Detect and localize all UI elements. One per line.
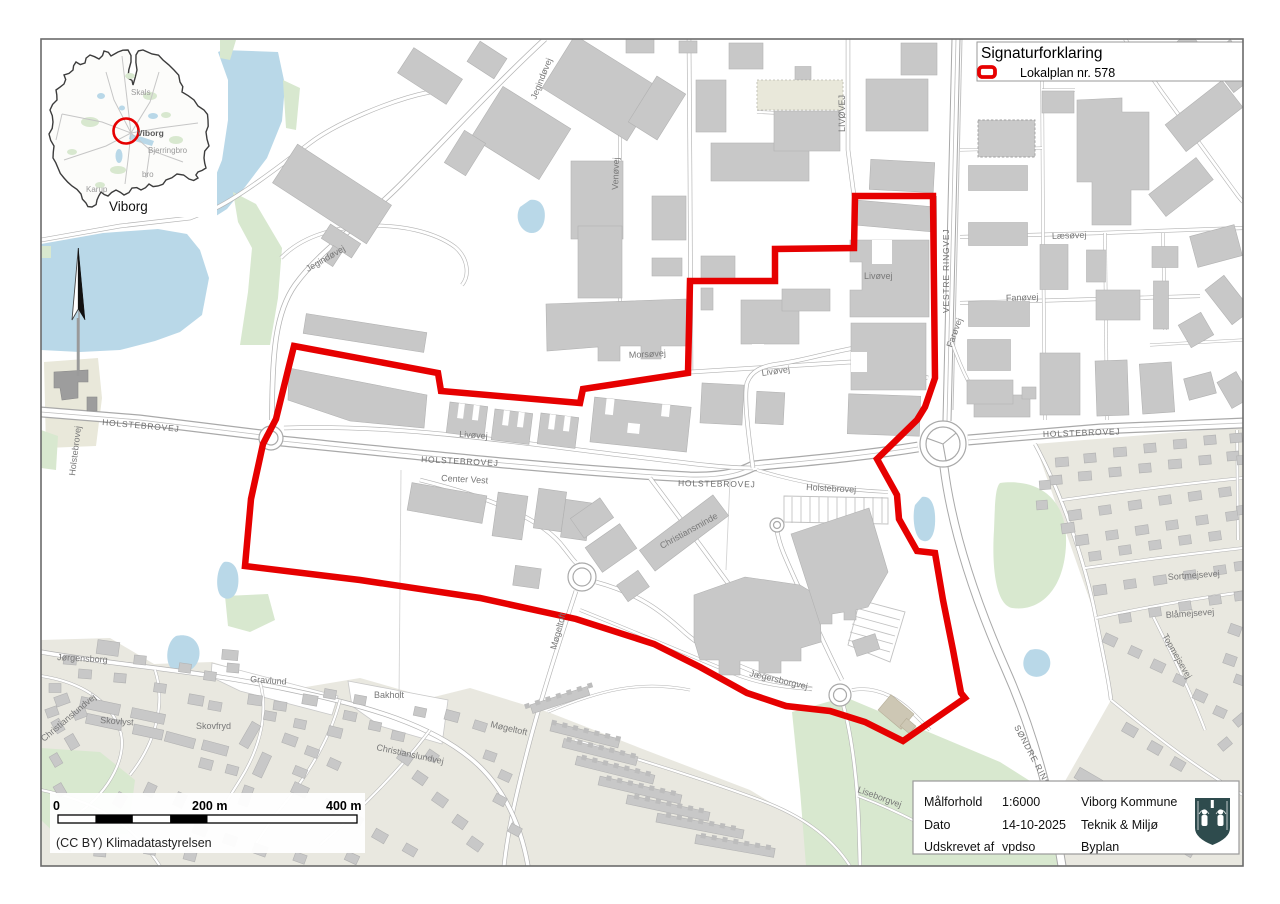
svg-text:Signaturforklaring: Signaturforklaring (981, 45, 1102, 62)
svg-text:Byplan: Byplan (1081, 840, 1119, 854)
svg-text:Læsøvej: Læsøvej (1052, 230, 1087, 241)
svg-text:LIVØVEJ: LIVØVEJ (837, 95, 847, 132)
svg-text:200 m: 200 m (192, 799, 227, 813)
svg-text:Karup: Karup (86, 185, 108, 194)
svg-text:1:6000: 1:6000 (1002, 795, 1040, 809)
svg-text:Lokalplan nr. 578: Lokalplan nr. 578 (1020, 66, 1115, 80)
svg-text:bro: bro (142, 170, 154, 179)
svg-text:Viborg: Viborg (137, 128, 164, 138)
svg-text:Dato: Dato (924, 818, 950, 832)
svg-text:Skovfryd: Skovfryd (196, 721, 231, 731)
svg-text:Venøvej: Venøvej (610, 157, 621, 190)
svg-text:400 m: 400 m (326, 799, 361, 813)
svg-text:HOLSTEBROVEJ: HOLSTEBROVEJ (678, 478, 756, 489)
svg-text:Bakholt: Bakholt (374, 690, 405, 700)
svg-text:Teknik & Miljø: Teknik & Miljø (1081, 818, 1158, 832)
svg-text:Viborg: Viborg (109, 199, 148, 214)
svg-text:Viborg Kommune: Viborg Kommune (1081, 795, 1177, 809)
svg-text:Fanøvej: Fanøvej (1006, 292, 1039, 303)
svg-text:Udskrevet af: Udskrevet af (924, 840, 995, 854)
svg-text:Målforhold: Målforhold (924, 795, 982, 809)
svg-text:0: 0 (53, 799, 60, 813)
svg-text:VESTRE RINGVEJ: VESTRE RINGVEJ (941, 229, 951, 313)
svg-text:14-10-2025: 14-10-2025 (1002, 818, 1066, 832)
svg-text:vpdso: vpdso (1002, 840, 1035, 854)
svg-text:Livøvej: Livøvej (459, 429, 488, 441)
svg-text:Morsøvej: Morsøvej (629, 348, 666, 360)
svg-text:Skals: Skals (131, 88, 151, 97)
svg-text:Livøvej: Livøvej (864, 271, 893, 281)
svg-text:Bjerringbro: Bjerringbro (148, 146, 188, 155)
svg-text:(CC BY) Klimadatastyrelsen: (CC BY) Klimadatastyrelsen (56, 836, 212, 850)
